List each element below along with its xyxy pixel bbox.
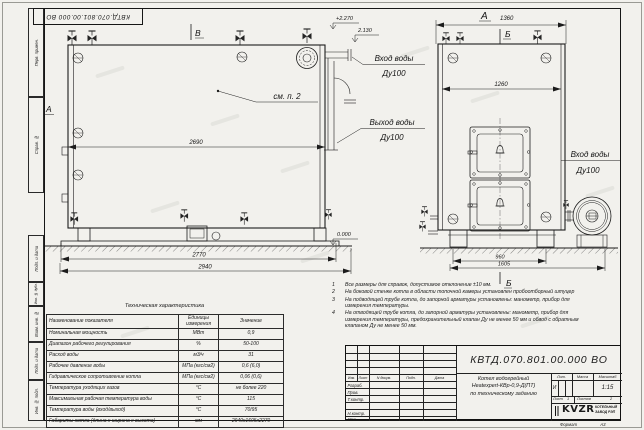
- lifting-lug: [62, 194, 68, 202]
- view-mark-a: А: [45, 104, 52, 114]
- role-razrab: Разраб.: [348, 383, 363, 388]
- view-mark-a-top: А: [480, 11, 488, 22]
- drain-valve-icon: [421, 207, 427, 217]
- valve-icon: [563, 201, 568, 209]
- sheet-value: 1: [567, 397, 569, 401]
- role-tkontr: Т.контр.: [348, 397, 365, 402]
- role-utv: Утв.: [348, 417, 358, 422]
- role-prov: Пров.: [348, 390, 359, 395]
- format-strip: Формат А3: [560, 422, 630, 427]
- col-value: Значение: [219, 315, 284, 329]
- col-izm: Изм.: [346, 374, 357, 381]
- mark-icon: [448, 53, 458, 63]
- dim-1260: 1260: [494, 82, 508, 88]
- org-name: КОТЕЛЬНЫЙ ЗАВОД РЭП: [595, 405, 617, 414]
- lifting-lug: [62, 147, 68, 155]
- note-item: 2На боковой стенке котла в области топоч…: [332, 289, 586, 295]
- col-list: Лист: [357, 374, 369, 381]
- format-value: А3: [600, 422, 605, 427]
- valve-icon: [236, 31, 245, 45]
- mark-icon: [237, 52, 247, 62]
- mark-icon: [541, 212, 551, 222]
- table-row: Габариты котла (длина х ширина х высота)…: [47, 417, 284, 428]
- lower-door: [468, 180, 530, 231]
- valve-icon: [303, 29, 312, 43]
- note-item: 1Все размеры для справок, допустимое отк…: [332, 282, 586, 288]
- label-outlet: Выход воды: [370, 118, 415, 127]
- ref-note: см. п. 2: [273, 92, 301, 101]
- front-view: А 1360 Б 1260: [419, 11, 620, 288]
- col-name: Наименование показателя: [47, 315, 179, 329]
- label-inlet-front: Вход воды: [571, 150, 610, 159]
- mark-icon: [541, 53, 551, 63]
- drain-valve-icon: [325, 210, 331, 220]
- side-view: В А см. п. 2 2690: [44, 16, 425, 274]
- dim-960: 960: [495, 255, 505, 261]
- mark-icon: [448, 214, 458, 224]
- kvzr-logo: KVZR: [562, 404, 594, 415]
- dim-2770: 2770: [191, 253, 206, 259]
- dim-1360: 1360: [500, 16, 514, 22]
- tech-table: Наименование показателя Единицы измерени…: [46, 314, 284, 428]
- col-units: Единицы измерения: [179, 315, 219, 329]
- dim-2940: 2940: [197, 265, 212, 271]
- elev-2130: 2.130: [357, 28, 373, 34]
- sheet-label: Лист: [553, 397, 563, 401]
- table-row: Номинальная мощностьМВт0,9: [47, 329, 284, 340]
- note-item: 4На отводящей трубе котла, до запорной а…: [332, 310, 586, 329]
- role-nkontr: Н.контр.: [348, 411, 366, 416]
- elev-2270: +2.270: [336, 16, 354, 22]
- pipework: [324, 49, 356, 150]
- section-mark-b-top: Б: [505, 29, 511, 39]
- table-row: Температура уходящих газов°Сне более 220: [47, 384, 284, 395]
- mark-icon: [73, 170, 83, 180]
- notes-list: 1Все размеры для справок, допустимое отк…: [332, 282, 586, 330]
- col-data: Дата: [423, 374, 456, 381]
- scale-value: 1:15: [593, 380, 622, 396]
- mark-icon: [73, 53, 83, 63]
- tech-table-title: Техническая характеристика: [46, 303, 283, 309]
- table-row: Расход водым3/ч31: [47, 351, 284, 362]
- note-item: 3На подводящей трубе котла, до запорной …: [332, 297, 586, 310]
- table-row: Рабочее давление водыМПа (кгс/см2)0,6 (6…: [47, 362, 284, 373]
- product-name: Котел водогрейный Heatexpert-КВр-0,9-Д(П…: [458, 376, 549, 398]
- dim-2690: 2690: [188, 140, 203, 146]
- valve-icon: [68, 31, 77, 45]
- drain-valve-icon: [240, 213, 248, 225]
- doc-number: КВТД.070.801.00.000 ВО: [456, 346, 622, 373]
- upper-door: [468, 127, 530, 178]
- valve-icon: [442, 33, 449, 44]
- table-row: Максимальная рабочая температура воды°С1…: [47, 395, 284, 406]
- valve-icon: [88, 31, 97, 45]
- label-inlet: Вход воды: [375, 54, 414, 63]
- col-podp: Подп.: [399, 374, 423, 381]
- lit-value: И: [551, 380, 558, 396]
- drain-valve-icon: [419, 222, 425, 232]
- view-mark-v: В: [195, 28, 201, 38]
- scale-label: Масштаб: [593, 373, 622, 380]
- col-dokum: N докум.: [369, 374, 399, 381]
- drawing-sheet: Перв. примен. Справ. № Подп. и дата Инв.…: [0, 0, 644, 430]
- table-row: Диапазон рабочего регулирования%50-100: [47, 340, 284, 351]
- sheets-value: 2: [610, 397, 612, 401]
- sheets-label: Листов: [577, 397, 591, 401]
- kvzr-logo-bars-icon: [555, 406, 560, 416]
- table-row: Гидравлическое сопротивление котлаМПа (к…: [47, 373, 284, 384]
- title-block: Изм. Лист N докум. Подп. Дата Разраб. Пр…: [345, 345, 621, 420]
- label-inlet-front-dn: Ду100: [575, 166, 600, 175]
- format-label: Формат: [560, 422, 577, 427]
- mark-icon: [73, 128, 83, 138]
- valve-icon: [456, 33, 463, 44]
- flange-icon: [297, 48, 318, 69]
- elev-0000: 0.000: [337, 232, 352, 238]
- dim-1605: 1605: [498, 262, 511, 268]
- valve-icon: [533, 31, 541, 44]
- label-inlet-dn: Ду100: [381, 69, 406, 78]
- drain-valve-icon: [180, 210, 188, 222]
- label-outlet-dn: Ду100: [379, 133, 404, 142]
- lit-label: Лит.: [551, 373, 572, 380]
- tech-table-header: Наименование показателя Единицы измерени…: [47, 315, 284, 329]
- mass-label: Масса: [572, 373, 593, 380]
- table-row: Температура воды (вход/выход)°С70/95: [47, 406, 284, 417]
- drain-valve-icon: [70, 213, 78, 225]
- blower-fan: [563, 197, 611, 247]
